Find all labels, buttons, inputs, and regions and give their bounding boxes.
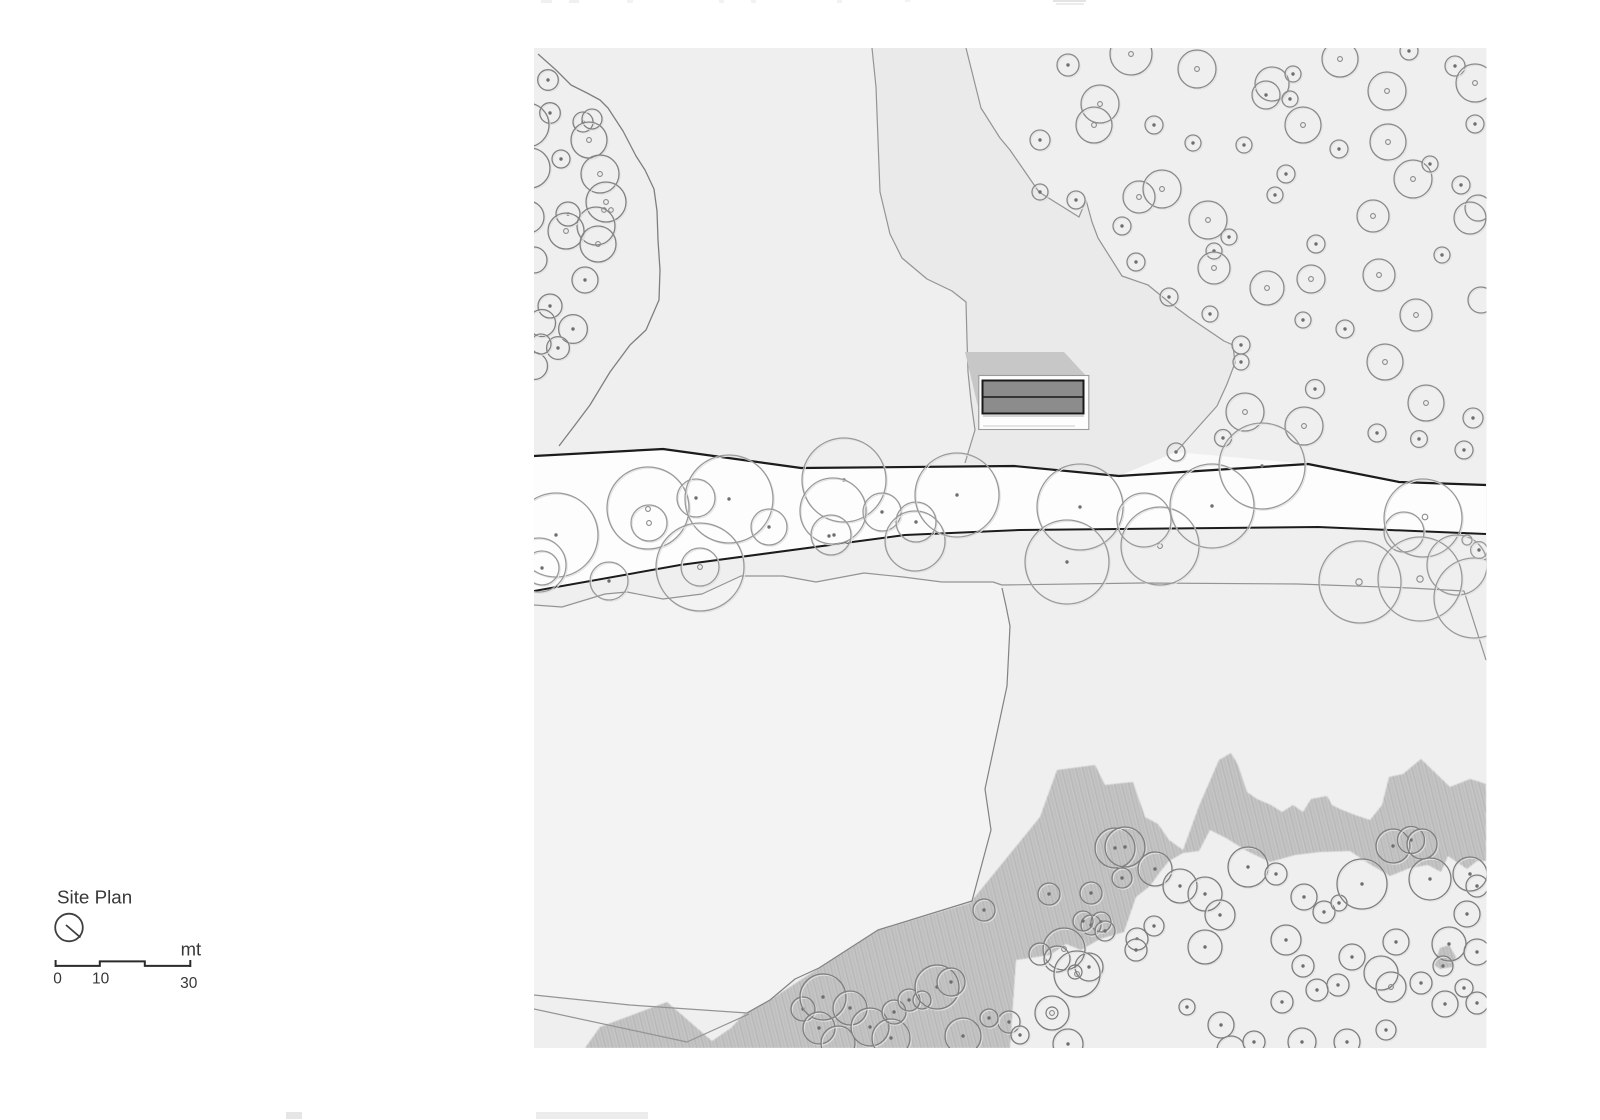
svg-text:mt: mt	[181, 939, 202, 960]
svg-text:0: 0	[53, 971, 62, 988]
svg-text:30: 30	[180, 975, 198, 992]
svg-text:10: 10	[92, 971, 110, 988]
svg-text:Site Plan: Site Plan	[57, 887, 132, 908]
